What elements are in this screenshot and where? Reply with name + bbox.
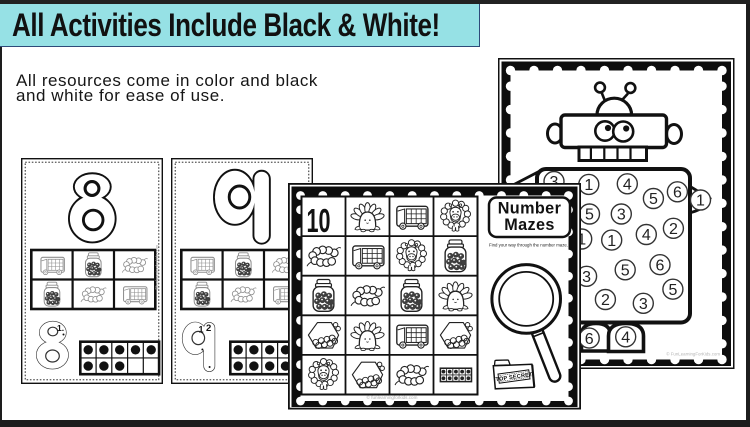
- svg-text:5: 5: [621, 262, 630, 279]
- svg-text:4: 4: [621, 329, 630, 346]
- svg-text:Mazes: Mazes: [504, 216, 555, 234]
- svg-text:2: 2: [206, 323, 211, 334]
- svg-text:6: 6: [673, 184, 682, 201]
- svg-text:4: 4: [623, 176, 632, 193]
- svg-text:6: 6: [656, 257, 665, 274]
- svg-text:© FunLearningForKids.com: © FunLearningForKids.com: [666, 351, 720, 356]
- svg-text:Find your way through the numb: Find your way through the number maze.: [489, 243, 568, 248]
- svg-text:Number: Number: [498, 199, 562, 217]
- svg-text:4: 4: [642, 227, 651, 244]
- svg-text:5: 5: [585, 206, 594, 223]
- svg-text:© funlearningforkids.com: © funlearningforkids.com: [367, 394, 418, 400]
- svg-text:©funlearningforkids.com: ©funlearningforkids.com: [155, 244, 160, 290]
- svg-text:1: 1: [199, 325, 204, 335]
- svg-text:5: 5: [668, 281, 677, 298]
- svg-text:3: 3: [582, 269, 591, 286]
- svg-text:1: 1: [607, 232, 616, 249]
- svg-text:3: 3: [639, 296, 648, 313]
- svg-text:6: 6: [585, 330, 594, 347]
- svg-text:2: 2: [601, 292, 610, 309]
- svg-text:2: 2: [669, 221, 678, 238]
- svg-text:3: 3: [617, 206, 626, 223]
- svg-text:1.: 1.: [57, 323, 64, 333]
- svg-text:1: 1: [584, 177, 593, 194]
- svg-text:5: 5: [649, 191, 658, 208]
- svg-text:10: 10: [307, 202, 331, 239]
- svg-text:1: 1: [696, 192, 705, 209]
